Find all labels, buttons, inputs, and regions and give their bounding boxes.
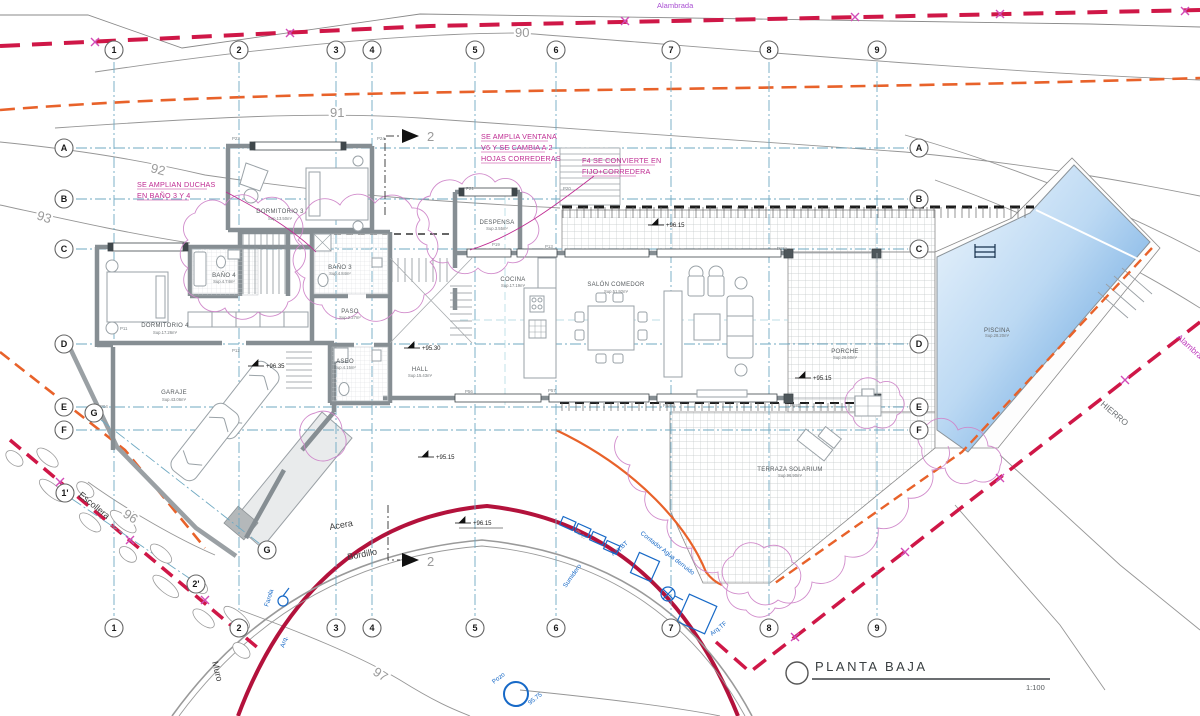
- svg-text:2: 2: [236, 45, 241, 55]
- chair-dorm3: [240, 163, 268, 191]
- axis-bubble: 3: [327, 619, 345, 637]
- axis-bubble: E: [910, 398, 928, 416]
- door-tag: P58b: [790, 403, 801, 408]
- label-alambrada-top: Alambrada: [657, 1, 694, 10]
- title-block: PLANTA BAJA 1:100: [786, 659, 1050, 692]
- contour-92: 92: [149, 160, 167, 178]
- label-hierro: HIERRO: [1099, 399, 1131, 428]
- axis-bubble: E: [55, 398, 73, 416]
- axis-bubble: G: [85, 404, 103, 422]
- svg-text:B: B: [61, 194, 68, 204]
- label-arq: Arq.: [279, 635, 289, 648]
- shelf-divider: [664, 291, 682, 377]
- door-tag: P19: [492, 242, 500, 247]
- room-despensa-area: Sup.3.55m²: [486, 226, 508, 231]
- axis-bubble: C: [55, 240, 73, 258]
- axis-bubble: 5: [466, 619, 484, 637]
- note-showers-line2: EN BAÑO 3 Y 4: [137, 191, 190, 200]
- room-bano4-area: Sup.4.74m²: [213, 279, 235, 284]
- axis-bubble: 1: [105, 41, 123, 59]
- section-arrow-icon: [402, 553, 419, 567]
- level-porch: +95.15: [813, 376, 832, 382]
- label-muro: Muro: [210, 660, 225, 682]
- axis-bubble: C: [910, 240, 928, 258]
- section-number: 2: [427, 554, 434, 569]
- svg-text:2': 2': [192, 579, 199, 589]
- axis-bubble: 2: [230, 41, 248, 59]
- axis-bubble: B: [910, 190, 928, 208]
- label-farola: Farola: [263, 588, 275, 608]
- room-bano4: BAÑO 4: [212, 272, 236, 279]
- dining-table: [588, 306, 634, 350]
- level-hall: +95.30: [422, 346, 441, 352]
- svg-text:5: 5: [472, 45, 477, 55]
- room-bano3: BAÑO 3: [328, 264, 352, 271]
- door-tag: P12: [232, 348, 240, 353]
- axis-bubble: 3: [327, 41, 345, 59]
- svg-text:D: D: [916, 339, 923, 349]
- axis-bubble: 9: [868, 619, 886, 637]
- axis-bubble: 8: [760, 41, 778, 59]
- door-tag: P13: [545, 244, 553, 249]
- label-bordillo: Bordillo: [346, 546, 377, 562]
- room-cocina-area: Sup.17.19m²: [501, 283, 526, 288]
- axis-bubble: 5: [466, 41, 484, 59]
- section-mark-bottom: 2: [388, 505, 434, 569]
- note-showers-line1: SE AMPLIAN DUCHAS: [137, 180, 216, 189]
- note-window-line1: SE AMPLIA VENTANA: [481, 132, 557, 141]
- terrace-porch-east: [788, 252, 935, 412]
- tub-bano4: [194, 252, 206, 286]
- label-sumidero: Sumidero: [562, 563, 583, 589]
- contour-97: 97: [370, 664, 390, 684]
- door-tag: P24: [377, 136, 385, 141]
- room-salon: SALÓN COMEDOR: [587, 281, 645, 288]
- svg-text:2: 2: [236, 623, 241, 633]
- svg-text:C: C: [916, 244, 923, 254]
- terrace-strip-north: [562, 210, 935, 252]
- svg-text:G: G: [263, 545, 270, 555]
- bordillo-curb-inner: [179, 546, 745, 716]
- utilities-group: Sumidero Arq.BT Arq.TF Contador Agua der…: [263, 516, 728, 706]
- section-arrow-icon: [402, 129, 419, 143]
- svg-text:8: 8: [766, 45, 771, 55]
- svg-text:E: E: [916, 402, 922, 412]
- axis-bubble: 2: [230, 619, 248, 637]
- door-tag: P11: [120, 326, 128, 331]
- note-f4-line1: F4 SE CONVIERTE EN: [582, 156, 661, 165]
- door-tag: P57: [548, 388, 556, 393]
- axis-bubble: D: [55, 335, 73, 353]
- axis-bubble: 7: [662, 619, 680, 637]
- svg-text:G: G: [90, 408, 97, 418]
- door-tag: P20: [563, 186, 571, 191]
- svg-text:7: 7: [668, 623, 673, 633]
- section-mark-top: 2: [385, 129, 434, 215]
- rock: [34, 445, 62, 471]
- car-2: [167, 400, 242, 485]
- room-terraza-area: Sup.96.90m²: [778, 473, 803, 478]
- svg-text:3: 3: [333, 623, 338, 633]
- level-garage: +96.35: [266, 364, 285, 370]
- svg-text:6: 6: [553, 623, 558, 633]
- label-pozo-level: 95.75: [527, 691, 544, 707]
- axis-bubble: F: [55, 421, 73, 439]
- room-aseo-area: Sup.4.15m²: [334, 365, 356, 370]
- axis-bubble: F: [910, 421, 928, 439]
- room-garaje-area: Sup.43.06m²: [162, 397, 187, 402]
- rock: [147, 541, 175, 567]
- room-paso-area: Sup.2.27m²: [339, 315, 361, 320]
- level-terrace: +96.15: [666, 223, 685, 229]
- svg-text:E: E: [61, 402, 67, 412]
- label-arq-tf: Arq.TF: [709, 620, 729, 637]
- floor-plan-sheet: 2 2 +96.35 +95.30 +96.15 +95.15 +95.15 +…: [0, 0, 1200, 716]
- drawing-title: PLANTA BAJA: [815, 659, 928, 674]
- sofa: [727, 296, 753, 358]
- svg-text:F: F: [61, 425, 67, 435]
- note-window-line3: HOJAS CORREDERAS: [481, 154, 561, 163]
- svg-text:1: 1: [111, 623, 116, 633]
- axis-bubble: 4: [363, 619, 381, 637]
- floor-plan-canvas: 2 2 +96.35 +95.30 +96.15 +95.15 +95.15 +…: [0, 0, 1200, 716]
- note-window-line2: V6 Y SE CAMBIA A 2: [481, 143, 553, 152]
- svg-text:1: 1: [111, 45, 116, 55]
- door-tag: P23: [232, 136, 240, 141]
- axis-bubble: 2': [187, 575, 205, 593]
- axis-bubble: B: [55, 190, 73, 208]
- level-exterior: +95.15: [436, 455, 455, 461]
- svg-text:B: B: [916, 194, 923, 204]
- rock: [150, 572, 182, 602]
- axis-bubble: A: [910, 139, 928, 157]
- axis-bubble: D: [910, 335, 928, 353]
- room-porche-area: Sup.26.60m²: [833, 355, 858, 360]
- rock: [3, 447, 26, 469]
- svg-text:9: 9: [874, 623, 879, 633]
- room-dormitorio3-area: Sup.13.50m²: [268, 216, 293, 221]
- room-hall-area: Sup.15.43m²: [408, 373, 433, 378]
- svg-text:4: 4: [369, 45, 374, 55]
- svg-text:A: A: [916, 143, 923, 153]
- door-tag: P56: [465, 389, 473, 394]
- axis-bubble: 9: [868, 41, 886, 59]
- axis-bubble: 4: [363, 41, 381, 59]
- room-garaje: GARAJE: [161, 390, 187, 396]
- room-salon-area: Sup.51.92m²: [604, 289, 629, 294]
- door-tag: P58a: [663, 403, 674, 408]
- closet: [188, 312, 308, 327]
- svg-text:9: 9: [874, 45, 879, 55]
- contour-9597: 95.97: [574, 529, 588, 542]
- svg-text:F: F: [916, 425, 922, 435]
- contour-93: 93: [35, 208, 53, 227]
- svg-text:D: D: [61, 339, 68, 349]
- room-piscina-area: Sup.28.20m²: [985, 333, 1010, 338]
- svg-text:3: 3: [333, 45, 338, 55]
- axis-bubble: 8: [760, 619, 778, 637]
- axis-bubble: 1': [56, 484, 74, 502]
- axis-bubble: G: [258, 541, 276, 559]
- axis-bubble: 6: [547, 41, 565, 59]
- svg-text:A: A: [61, 143, 68, 153]
- contour-90: 90: [515, 25, 529, 40]
- svg-text:6: 6: [553, 45, 558, 55]
- svg-text:C: C: [61, 244, 68, 254]
- escollera-rocks: [3, 445, 253, 662]
- axis-bubble: 6: [547, 619, 565, 637]
- label-acera: Acera: [329, 518, 354, 532]
- room-dormitorio3: DORMITORIO 3: [256, 209, 304, 215]
- title-bullet-icon: [786, 662, 808, 684]
- level-sidewalk: +96.15: [473, 521, 492, 527]
- wc-aseo: [339, 383, 349, 396]
- axis-bubble: 1: [105, 619, 123, 637]
- pozo-icon: [504, 682, 528, 706]
- door-tag: P21: [466, 186, 474, 191]
- section-number: 2: [427, 129, 434, 144]
- room-dormitorio4: DORMITORIO 4: [141, 323, 189, 329]
- room-bano3-area: Sup.4.84m²: [329, 271, 351, 276]
- note-f4-line2: FIJO+CORREDERA: [582, 167, 651, 176]
- muro-street-wall: [238, 506, 738, 716]
- svg-text:4: 4: [369, 623, 374, 633]
- fence-north: [0, 10, 1200, 46]
- label-pozo: Pozo: [491, 671, 507, 686]
- door-tag: P15a: [777, 246, 788, 251]
- room-dormitorio4-area: Sup.17.26m²: [153, 330, 178, 335]
- axis-bubble: A: [55, 139, 73, 157]
- drawing-scale: 1:100: [1026, 683, 1045, 692]
- axis-bubble: 7: [662, 41, 680, 59]
- label-alambrada-right: Alambrada: [1175, 332, 1200, 367]
- contour-91: 91: [330, 105, 344, 120]
- svg-text:7: 7: [668, 45, 673, 55]
- farola-icon: [278, 588, 289, 606]
- svg-text:5: 5: [472, 623, 477, 633]
- coffee-table: [694, 314, 720, 340]
- svg-text:1': 1': [61, 488, 68, 498]
- svg-text:8: 8: [766, 623, 771, 633]
